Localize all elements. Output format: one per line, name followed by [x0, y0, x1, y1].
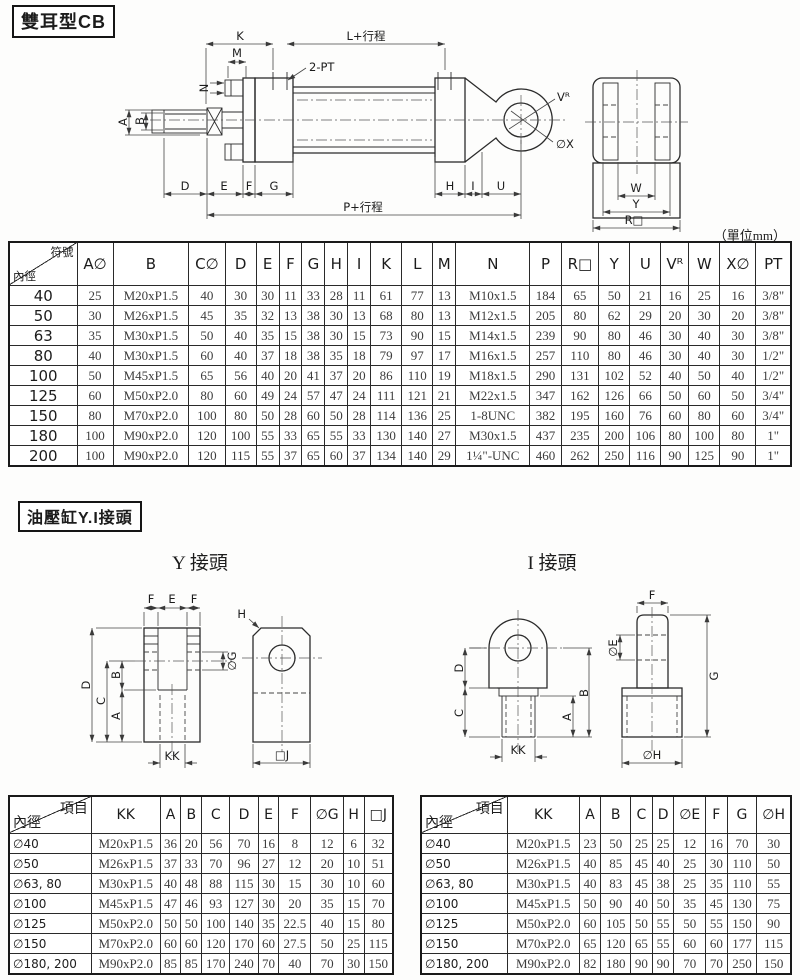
- table-cell: 127: [230, 894, 258, 914]
- table-cell: 116: [630, 446, 661, 467]
- dim-label-diae: ∅E: [606, 639, 620, 656]
- table-cell: 40: [661, 366, 689, 386]
- cylinder-side-view: [150, 72, 566, 162]
- table-cell: 100: [225, 426, 256, 446]
- table-cell: 40: [160, 874, 181, 894]
- table-cell: 195: [561, 406, 599, 426]
- table-cell: M30xP1.5: [113, 326, 189, 346]
- table-cell: 18: [348, 346, 371, 366]
- table-cell: 28: [325, 286, 348, 306]
- table-cell: 80: [189, 386, 225, 406]
- dim-label-w: W: [630, 181, 641, 195]
- table-cell: 62: [599, 306, 630, 326]
- table-cell: 382: [530, 406, 561, 426]
- dim-label-n: N: [197, 84, 211, 93]
- table-cell: 37: [256, 346, 279, 366]
- table-cell: 80: [77, 406, 113, 426]
- table-cell: 30: [689, 306, 720, 326]
- table-row: ∅125M50xP2.050501001403522.5401580: [9, 914, 393, 934]
- dim-label-c: C: [452, 709, 466, 717]
- dim-label-f: F: [649, 588, 656, 602]
- table-cell: 60: [674, 934, 705, 954]
- y-joint-side-view: H □J: [237, 607, 322, 768]
- table-cell: 3/8": [756, 326, 791, 346]
- table-cell: 20: [279, 894, 311, 914]
- table-cell: 114: [371, 406, 402, 426]
- table-cell: 80: [661, 426, 689, 446]
- row-header-bore: ∅125: [421, 914, 507, 934]
- table-cell: 35: [311, 894, 343, 914]
- table-cell: 60: [77, 386, 113, 406]
- table-cell: 250: [599, 446, 630, 467]
- table-cell: 25: [674, 874, 705, 894]
- table-cell: 136: [402, 406, 433, 426]
- i-joint-drawing: D C B A KK F ∅E G: [420, 585, 790, 785]
- table-cell: 50: [689, 366, 720, 386]
- table-cell: M30xP1.5: [91, 874, 160, 894]
- table-cell: 1/2": [756, 346, 791, 366]
- table-row: 200100M90xP2.01201155537656037134140291¼…: [9, 446, 791, 467]
- table-cell: 50: [674, 914, 705, 934]
- table-cell: 24: [279, 386, 302, 406]
- table-cell: 35: [258, 914, 279, 934]
- table-cell: 68: [371, 306, 402, 326]
- table-row: ∅63, 80M30xP1.54048881153015301060: [9, 874, 393, 894]
- column-header: I: [348, 242, 371, 286]
- column-header: B: [181, 796, 202, 834]
- table-cell: 16: [661, 286, 689, 306]
- table-cell: 50: [181, 914, 202, 934]
- table-cell: M10x1.5: [456, 286, 530, 306]
- table-cell: 12: [279, 854, 311, 874]
- table-row: ∅63, 80M30xP1.540834538253511055: [421, 874, 791, 894]
- table-cell: 1": [756, 446, 791, 467]
- column-header: Vᴿ: [661, 242, 689, 286]
- table-cell: 184: [530, 286, 561, 306]
- table-cell: M20xP1.5: [507, 834, 579, 854]
- table-cell: 32: [364, 834, 393, 854]
- table-cell: M45xP1.5: [91, 894, 160, 914]
- table-cell: M90xP2.0: [113, 426, 189, 446]
- table-cell: 38: [652, 874, 674, 894]
- table-cell: 110: [727, 854, 757, 874]
- table-cell: 55: [256, 426, 279, 446]
- table-cell: 30: [311, 874, 343, 894]
- table-cell: 200: [599, 426, 630, 446]
- table-cell: 65: [579, 934, 601, 954]
- table-row: 8040M30xP1.560403718383518799717M16x1.52…: [9, 346, 791, 366]
- dim-label-f2: F: [191, 592, 198, 606]
- dim-label-d: D: [79, 680, 93, 689]
- table-cell: 50: [325, 406, 348, 426]
- row-header-bore: 40: [9, 286, 77, 306]
- table-cell: M14x1.5: [456, 326, 530, 346]
- column-header: C: [631, 796, 653, 834]
- table-row: ∅125M50xP2.0601055055505515090: [421, 914, 791, 934]
- table-cell: 60: [364, 874, 393, 894]
- column-header: KK: [507, 796, 579, 834]
- table-cell: M45xP1.5: [113, 366, 189, 386]
- table-cell: 28: [279, 406, 302, 426]
- dim-label-c: C: [94, 697, 108, 705]
- table-corner-cell: 項目內徑: [9, 796, 91, 834]
- dim-label-d: D: [452, 663, 466, 672]
- table-cell: 10: [343, 874, 364, 894]
- table-cell: 13: [433, 286, 456, 306]
- row-header-bore: ∅125: [9, 914, 91, 934]
- table-cell: 40: [689, 346, 720, 366]
- port-label-2pt: 2-PT: [309, 60, 335, 74]
- table-cell: 47: [160, 894, 181, 914]
- table-cell: 60: [720, 406, 756, 426]
- column-header: F: [279, 796, 311, 834]
- table-cell: 105: [601, 914, 631, 934]
- row-header-bore: 80: [9, 346, 77, 366]
- column-header: Y: [599, 242, 630, 286]
- cylinder-end-view: W Y R□: [585, 70, 688, 232]
- table-cell: 150: [727, 914, 757, 934]
- table-cell: 162: [561, 386, 599, 406]
- table-corner-cell: 項目內徑: [421, 796, 507, 834]
- table-cell: 30: [757, 834, 791, 854]
- table-cell: 235: [561, 426, 599, 446]
- table-cell: 3/4": [756, 386, 791, 406]
- row-header-bore: 50: [9, 306, 77, 326]
- table-cell: 80: [402, 306, 433, 326]
- table-cell: 65: [302, 446, 325, 467]
- table-cell: 60: [689, 386, 720, 406]
- table-cell: M50xP2.0: [507, 914, 579, 934]
- column-header: ∅H: [757, 796, 791, 834]
- i-joint-dimension-table: 項目內徑KKABCD∅EFG∅H∅40M20xP1.52350252512167…: [420, 795, 792, 975]
- column-header: G: [302, 242, 325, 286]
- table-cell: 60: [325, 446, 348, 467]
- y-joint-dimension-table: 項目內徑KKABCDEF∅GH□J∅40M20xP1.5362056701681…: [8, 795, 394, 975]
- table-cell: M90xP2.0: [91, 954, 160, 975]
- table-cell: 110: [402, 366, 433, 386]
- table-row: ∅100M45xP1.54746931273020351570: [9, 894, 393, 914]
- table-cell: 61: [371, 286, 402, 306]
- row-header-bore: 63: [9, 326, 77, 346]
- table-cell: 106: [630, 426, 661, 446]
- table-row: ∅50M26xP1.540854540253011050: [421, 854, 791, 874]
- table-cell: 30: [661, 326, 689, 346]
- table-cell: 25: [433, 406, 456, 426]
- dim-label-l-stroke: L+行程: [346, 29, 386, 43]
- table-cell: 120: [189, 426, 225, 446]
- dim-label-a: A: [116, 118, 130, 126]
- table-cell: 20: [311, 854, 343, 874]
- table-cell: 20: [348, 366, 371, 386]
- dim-label-h: H: [446, 179, 455, 193]
- table-cell: 65: [189, 366, 225, 386]
- row-header-bore: ∅100: [421, 894, 507, 914]
- table-cell: 46: [181, 894, 202, 914]
- table-cell: 85: [160, 954, 181, 975]
- table-cell: 150: [364, 954, 393, 975]
- table-cell: 16: [705, 834, 727, 854]
- table-cell: 239: [530, 326, 561, 346]
- table-cell: 205: [530, 306, 561, 326]
- table-cell: 100: [77, 446, 113, 467]
- table-cell: 33: [302, 286, 325, 306]
- row-header-bore: ∅150: [421, 934, 507, 954]
- table-row: ∅50M26xP1.5373370962712201051: [9, 854, 393, 874]
- table-cell: M90xP2.0: [113, 446, 189, 467]
- table-cell: 257: [530, 346, 561, 366]
- table-cell: 16: [720, 286, 756, 306]
- table-cell: 100: [202, 914, 230, 934]
- dim-label-k: K: [236, 29, 244, 43]
- table-cell: 90: [661, 446, 689, 467]
- table-cell: 437: [530, 426, 561, 446]
- table-cell: 45: [631, 874, 653, 894]
- table-cell: 21: [433, 386, 456, 406]
- column-header: A: [579, 796, 601, 834]
- column-header: KK: [91, 796, 160, 834]
- table-cell: 55: [325, 426, 348, 446]
- table-cell: 30: [325, 326, 348, 346]
- table-cell: 60: [302, 406, 325, 426]
- table-cell: 1¼"-UNC: [456, 446, 530, 467]
- table-cell: 50: [652, 894, 674, 914]
- table-cell: 50: [720, 386, 756, 406]
- table-cell: 50: [311, 934, 343, 954]
- column-header: W: [689, 242, 720, 286]
- table-cell: 35: [674, 894, 705, 914]
- table-row: ∅150M70xP2.060601201706027.55025115: [9, 934, 393, 954]
- table-cell: 24: [348, 386, 371, 406]
- table-cell: 140: [402, 446, 433, 467]
- i-joint-front-view: [470, 610, 563, 752]
- table-cell: 30: [343, 954, 364, 975]
- column-header: L: [402, 242, 433, 286]
- table-cell: 170: [202, 954, 230, 975]
- table-cell: 66: [630, 386, 661, 406]
- table-cell: 46: [630, 326, 661, 346]
- table-cell: 65: [561, 286, 599, 306]
- row-header-bore: 150: [9, 406, 77, 426]
- dim-label-e: E: [168, 592, 175, 606]
- table-cell: M30xP1.5: [507, 874, 579, 894]
- column-header: P: [530, 242, 561, 286]
- column-header: F: [279, 242, 302, 286]
- table-cell: 100: [189, 406, 225, 426]
- row-header-bore: 100: [9, 366, 77, 386]
- dim-label-diah: ∅H: [643, 748, 662, 762]
- table-cell: 15: [279, 874, 311, 894]
- table-cell: 27: [433, 426, 456, 446]
- table-cell: 25: [674, 854, 705, 874]
- table-cell: 125: [689, 446, 720, 467]
- table-cell: 40: [256, 366, 279, 386]
- column-header: U: [630, 242, 661, 286]
- column-header: E: [256, 242, 279, 286]
- table-cell: 102: [599, 366, 630, 386]
- table-cell: 13: [348, 306, 371, 326]
- table-cell: 56: [225, 366, 256, 386]
- table-cell: M70xP2.0: [113, 406, 189, 426]
- header-row: 符號內徑A∅BC∅DEFGHIKLMNPR□YUVᴿWX∅PT: [9, 242, 791, 286]
- table-row: 6335M30xP1.550403515383015739015M14x1.52…: [9, 326, 791, 346]
- table-cell: 30: [705, 854, 727, 874]
- dim-label-m: M: [232, 46, 242, 60]
- table-cell: 85: [181, 954, 202, 975]
- table-cell: 40: [579, 874, 601, 894]
- table-cell: 33: [348, 426, 371, 446]
- table-cell: 83: [601, 874, 631, 894]
- table-cell: 40: [689, 326, 720, 346]
- table-cell: 48: [181, 874, 202, 894]
- table-cell: 30: [661, 346, 689, 366]
- dim-label-u: U: [497, 179, 505, 193]
- table-cell: 1": [756, 426, 791, 446]
- table-cell: M70xP2.0: [91, 934, 160, 954]
- table-cell: M70xP2.0: [507, 934, 579, 954]
- table-cell: 170: [230, 934, 258, 954]
- table-row: 10050M45xP1.5655640204137208611019M18x1.…: [9, 366, 791, 386]
- row-header-bore: ∅50: [9, 854, 91, 874]
- table-cell: 15: [343, 914, 364, 934]
- table-cell: 30: [720, 346, 756, 366]
- table-cell: 50: [661, 386, 689, 406]
- table-cell: 70: [202, 854, 230, 874]
- row-header-bore: ∅100: [9, 894, 91, 914]
- dim-label-f1: F: [148, 592, 155, 606]
- table-cell: 262: [561, 446, 599, 467]
- table-cell: 8: [279, 834, 311, 854]
- table-cell: 70: [230, 834, 258, 854]
- table-cell: 35: [77, 326, 113, 346]
- dim-label-kk: KK: [164, 749, 180, 763]
- y-joint-subtitle: Y 接頭: [100, 548, 300, 575]
- table-cell: 30: [258, 894, 279, 914]
- row-header-bore: ∅150: [9, 934, 91, 954]
- table-cell: 30: [720, 326, 756, 346]
- table-cell: 20: [181, 834, 202, 854]
- table-cell: 60: [579, 914, 601, 934]
- table-cell: 27.5: [279, 934, 311, 954]
- table-corner-cell: 符號內徑: [9, 242, 77, 286]
- table-cell: M26xP1.5: [113, 306, 189, 326]
- column-header: B: [601, 796, 631, 834]
- table-cell: 131: [561, 366, 599, 386]
- table-cell: 85: [601, 854, 631, 874]
- i-joint-side-view: [622, 607, 682, 752]
- table-cell: 52: [630, 366, 661, 386]
- table-cell: 77: [402, 286, 433, 306]
- table-cell: 60: [189, 346, 225, 366]
- table-cell: 25: [343, 934, 364, 954]
- table-cell: 150: [757, 954, 791, 975]
- cb-dimension-table: 符號內徑A∅BC∅DEFGHIKLMNPR□YUVᴿWX∅PT4025M20xP…: [8, 241, 792, 467]
- table-cell: 126: [599, 386, 630, 406]
- table-cell: 50: [579, 894, 601, 914]
- table-cell: 25: [652, 834, 674, 854]
- table-cell: 40: [631, 894, 653, 914]
- table-cell: 12: [311, 834, 343, 854]
- table-cell: 25: [631, 834, 653, 854]
- column-header: H: [325, 242, 348, 286]
- row-header-bore: 125: [9, 386, 77, 406]
- column-header: E: [258, 796, 279, 834]
- table-cell: 115: [757, 934, 791, 954]
- i-joint-front-dims: D C B A KK: [452, 648, 592, 762]
- table-cell: 100: [77, 426, 113, 446]
- table-cell: 65: [631, 934, 653, 954]
- table-cell: 130: [371, 426, 402, 446]
- dim-label-h: H: [237, 607, 246, 621]
- table-cell: 110: [561, 346, 599, 366]
- column-header: R□: [561, 242, 599, 286]
- column-header: M: [433, 242, 456, 286]
- dim-label-p-stroke: P+行程: [343, 200, 383, 214]
- table-cell: 290: [530, 366, 561, 386]
- table-cell: M26xP1.5: [91, 854, 160, 874]
- table-cell: 33: [279, 426, 302, 446]
- table-cell: 40: [652, 854, 674, 874]
- table-cell: 15: [433, 326, 456, 346]
- table-cell: 30: [256, 286, 279, 306]
- table-row: 15080M70xP2.0100805028605028114136251-8U…: [9, 406, 791, 426]
- dim-label-rsq: R□: [625, 213, 644, 227]
- header-row: 項目內徑KKABCD∅EFG∅H: [421, 796, 791, 834]
- table-cell: 25: [77, 286, 113, 306]
- table-cell: M20xP1.5: [113, 286, 189, 306]
- table-cell: 50: [599, 286, 630, 306]
- table-cell: 1/2": [756, 366, 791, 386]
- column-header: A: [160, 796, 181, 834]
- table-cell: 90: [757, 914, 791, 934]
- table-cell: 40: [225, 346, 256, 366]
- column-header: D: [230, 796, 258, 834]
- column-header: F: [705, 796, 727, 834]
- table-cell: 49: [256, 386, 279, 406]
- column-header: X∅: [720, 242, 756, 286]
- table-cell: 15: [279, 326, 302, 346]
- dim-label-a: A: [560, 713, 574, 721]
- table-cell: 70: [258, 954, 279, 975]
- table-cell: 55: [757, 874, 791, 894]
- table-cell: 177: [727, 934, 757, 954]
- table-cell: 65: [302, 426, 325, 446]
- column-header: PT: [756, 242, 791, 286]
- table-cell: 60: [661, 406, 689, 426]
- table-cell: 35: [325, 346, 348, 366]
- table-row: ∅40M20xP1.53620567016812632: [9, 834, 393, 854]
- column-header: D: [652, 796, 674, 834]
- table-cell: 80: [720, 426, 756, 446]
- table-cell: 13: [279, 306, 302, 326]
- table-cell: 82: [579, 954, 601, 975]
- table-row: ∅40M20xP1.52350252512167030: [421, 834, 791, 854]
- table-cell: 37: [279, 446, 302, 467]
- table-cell: 90: [402, 326, 433, 346]
- table-cell: 20: [279, 366, 302, 386]
- table-cell: 37: [160, 854, 181, 874]
- dim-label-g: G: [707, 672, 721, 681]
- table-cell: 27: [258, 854, 279, 874]
- table-cell: 3/4": [756, 406, 791, 426]
- y-joint-drawing: F E F D C B A ∅G KK H □J: [30, 585, 400, 785]
- table-cell: M30x1.5: [456, 426, 530, 446]
- table-cell: 30: [77, 306, 113, 326]
- table-cell: 16: [258, 834, 279, 854]
- table-cell: 97: [402, 346, 433, 366]
- table-cell: 240: [230, 954, 258, 975]
- table-cell: 90: [652, 954, 674, 975]
- dim-label-i: I: [471, 179, 474, 193]
